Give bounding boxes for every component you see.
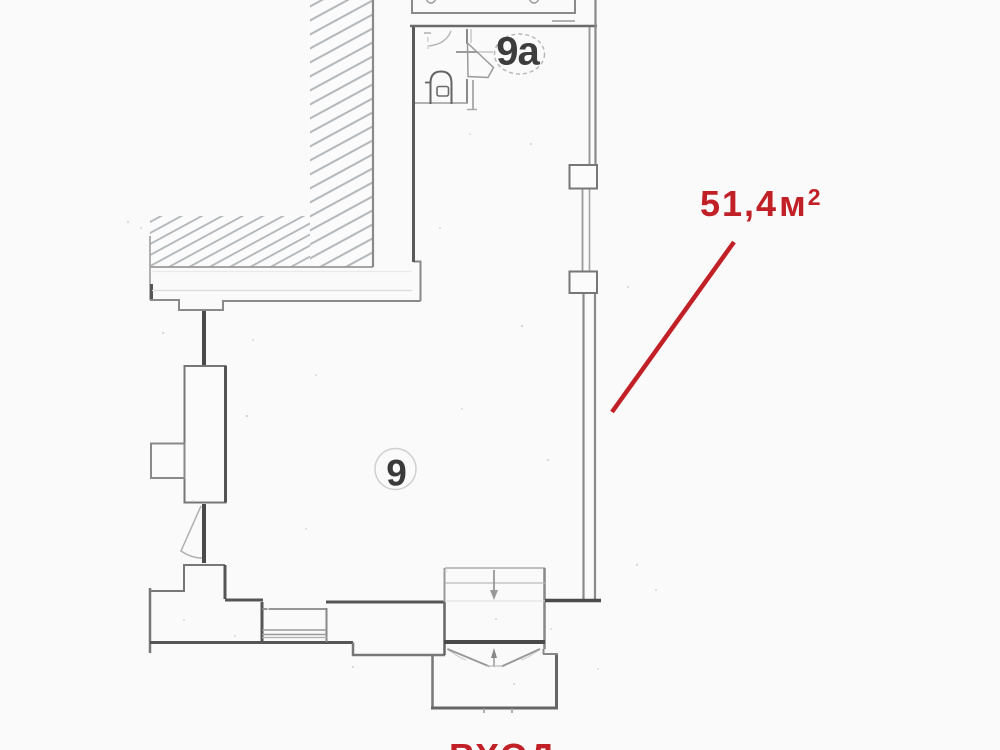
- svg-text:ВХОД: ВХОД: [449, 736, 556, 750]
- svg-text:9a: 9a: [496, 30, 540, 74]
- svg-text:51,4м2: 51,4м2: [700, 183, 823, 224]
- svg-text:9: 9: [386, 453, 407, 494]
